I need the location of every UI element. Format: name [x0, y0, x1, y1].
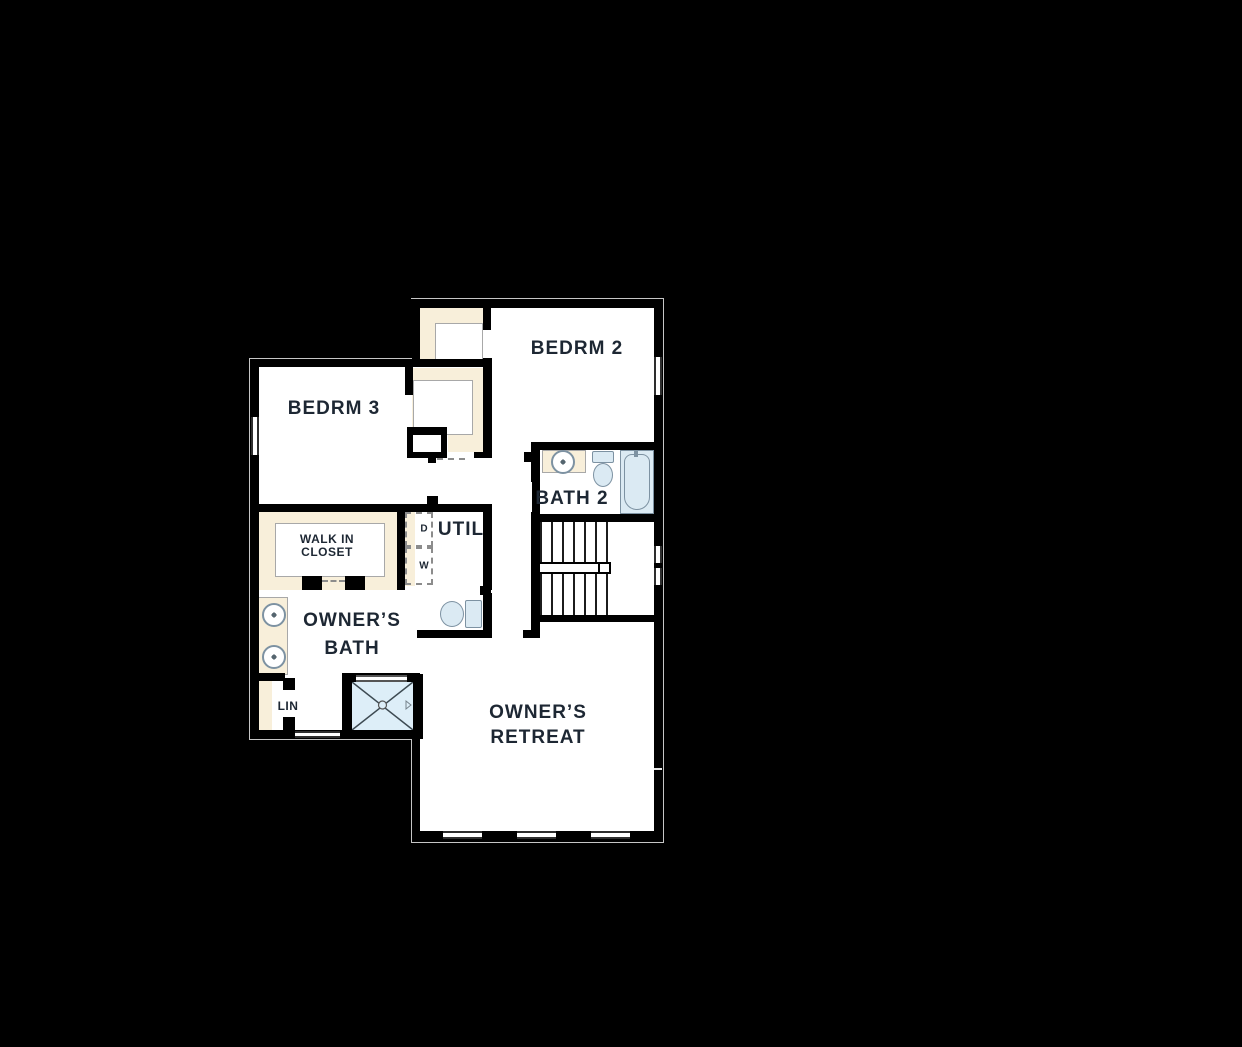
bedrm2-label: BEDRM 2 — [531, 338, 624, 360]
exterior-outline-top — [411, 298, 664, 299]
exterior-outline-leftblock-bottom — [249, 739, 412, 740]
bath2-tub-basin-icon — [624, 454, 650, 510]
bath2-toilet-tank-icon — [592, 451, 614, 463]
wall-shower-right — [413, 674, 423, 738]
wall-walkin-util-divider — [397, 504, 405, 590]
wall-walkin-bottom-left — [302, 576, 322, 590]
dryer-label: D — [420, 524, 427, 535]
wall-util-stub — [480, 586, 491, 595]
wall-toilet-nook-bottom — [417, 630, 492, 638]
bath2-label: BATH 2 — [535, 488, 608, 510]
owners-bath-label-line2: BATH — [324, 638, 379, 660]
walkin-label-line2: CLOSET — [301, 545, 353, 559]
lin-shelf-strip — [258, 681, 272, 730]
wall-shower-stub-left — [342, 674, 356, 682]
walkin-cased-opening — [322, 580, 345, 582]
wall-topblock-left — [412, 300, 420, 367]
owners-bath-label-line1: OWNER’S — [303, 610, 401, 632]
floor-plan-canvas: BEDRM 2 BEDRM 3 BATH 2 UTIL WALK IN CLOS… — [0, 0, 1242, 1047]
wall-bedrm2-bottom — [532, 442, 662, 450]
wall-bath2-left-upper — [531, 442, 540, 482]
window-retreat-1 — [443, 831, 482, 839]
wall-bath2-bottom — [531, 514, 654, 522]
owners-toilet-bowl-icon — [440, 601, 464, 627]
washer-label: W — [419, 561, 428, 572]
wall-bedrm3-top — [250, 359, 490, 367]
owners-retreat-label-line1: OWNER’S — [489, 702, 587, 724]
walkin-label-line1: WALK IN — [300, 532, 354, 546]
bath2-sink-icon — [551, 450, 575, 474]
wall-walkin-bottom-right — [345, 576, 365, 590]
wall-left — [251, 359, 259, 738]
exterior-outline-left — [249, 358, 250, 740]
wall-shower-stub-right — [407, 674, 423, 682]
shower-entry-threshold — [356, 675, 407, 682]
shower-pan-icon — [352, 682, 413, 730]
owners-sink-2-icon — [262, 645, 286, 669]
stair-treads-upper — [540, 522, 608, 562]
wall-util-right — [483, 504, 491, 550]
window-retreat-3 — [591, 831, 630, 839]
wall-closet-left-stub — [405, 359, 413, 395]
wall-top — [412, 300, 662, 308]
window-bath-bottom — [295, 731, 340, 738]
bath2-tub-faucet-icon — [634, 451, 638, 457]
util-label: UTIL — [438, 519, 484, 541]
wall-closet-foot — [474, 452, 492, 458]
wall-joint-tick — [654, 768, 662, 770]
bedrm3-label: BEDRM 3 — [288, 398, 381, 420]
bedrm2-closet-inner — [435, 323, 483, 360]
lin-label: LIN — [278, 699, 299, 713]
wall-retreat-left — [412, 738, 420, 841]
window-retreat-2 — [517, 831, 556, 839]
hall-floor — [492, 442, 532, 638]
wall-stairs-foot — [523, 630, 540, 638]
wall-closet-right-upper — [483, 308, 491, 330]
closet-cased-opening — [437, 458, 465, 460]
wall-stairs-bottom — [531, 615, 654, 622]
wall-hall-notch — [524, 452, 532, 462]
wall-bedrm3-door-jamb — [427, 496, 438, 504]
bath2-toilet-bowl-icon — [593, 463, 613, 487]
stair-railing — [538, 562, 611, 574]
window-stairs-right-1 — [654, 546, 662, 563]
owners-retreat-label-line2: RETREAT — [490, 727, 585, 749]
dryer-appliance-icon — [405, 512, 433, 547]
stair-railing-divider — [598, 562, 600, 574]
wall-walkin-top — [250, 504, 488, 512]
owners-sink-1-icon — [262, 603, 286, 627]
wall-lin-top — [250, 673, 285, 681]
wall-lin-jamb-bottom — [283, 717, 295, 730]
wall-lin-jamb-top — [283, 678, 295, 690]
owners-toilet-tank-icon — [465, 600, 482, 628]
exterior-outline-right — [663, 298, 664, 843]
exterior-outline-bottom — [411, 842, 664, 843]
bedrm3-small-closet-inner — [413, 435, 441, 452]
retreat-floor-upper — [540, 622, 654, 638]
shower-glass-icon — [352, 682, 413, 730]
wall-shower-left — [342, 674, 352, 730]
window-bedrm2-right — [654, 357, 662, 395]
stair-treads-lower — [540, 574, 608, 615]
wall-closet-right-lower — [483, 358, 492, 458]
bedrm3-closet-band — [448, 435, 483, 452]
window-stairs-right-2 — [654, 568, 662, 585]
window-bedrm3-left — [251, 417, 259, 455]
